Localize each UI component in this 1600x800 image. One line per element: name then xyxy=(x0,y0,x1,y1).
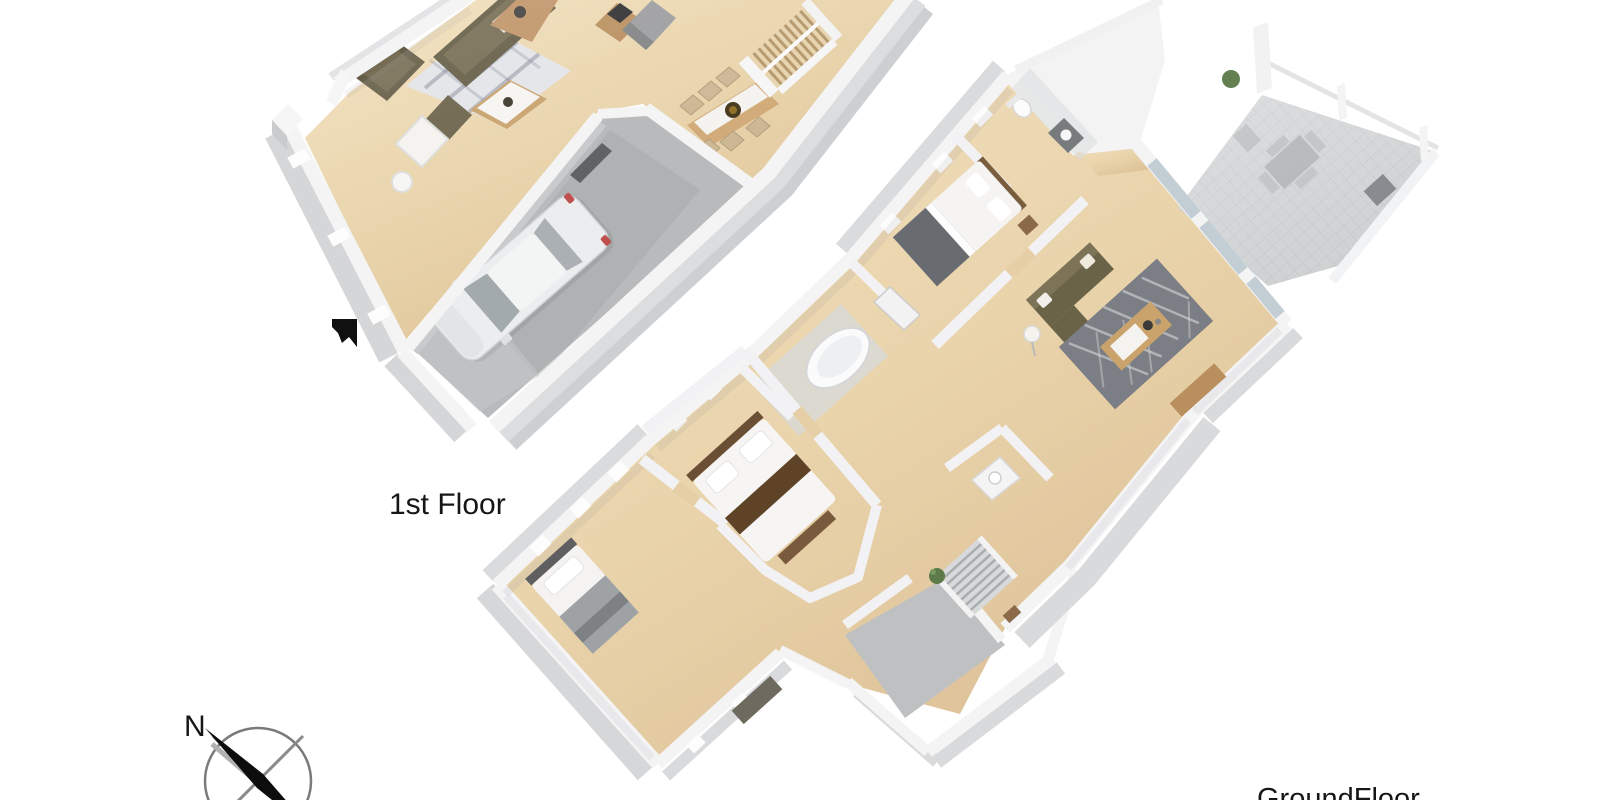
svg-text:1st Floor: 1st Floor xyxy=(389,488,506,521)
svg-text:GroundFloor: GroundFloor xyxy=(1257,783,1420,800)
svg-text:N: N xyxy=(184,710,206,743)
